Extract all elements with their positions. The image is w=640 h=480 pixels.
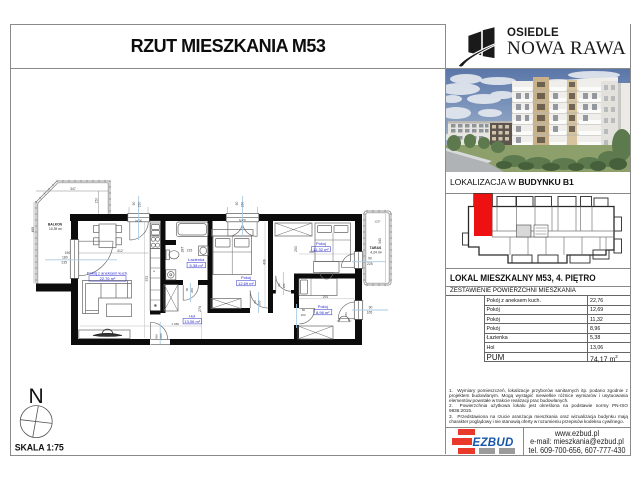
svg-text:200: 200 xyxy=(190,288,194,293)
svg-text:13,06 m²: 13,06 m² xyxy=(184,319,200,324)
svg-text:180: 180 xyxy=(62,256,68,260)
svg-text:215: 215 xyxy=(187,249,193,253)
svg-text:1 960: 1 960 xyxy=(172,322,180,326)
svg-text:998: 998 xyxy=(154,334,158,339)
svg-text:90: 90 xyxy=(235,202,239,206)
svg-text:90: 90 xyxy=(368,256,372,260)
svg-text:150: 150 xyxy=(241,202,245,208)
svg-text:bp.90: bp.90 xyxy=(135,218,142,222)
svg-text:10,39 m²: 10,39 m² xyxy=(49,227,63,231)
svg-text:274: 274 xyxy=(198,306,202,312)
svg-text:123°: 123° xyxy=(374,220,381,224)
svg-text:225: 225 xyxy=(367,262,373,266)
svg-text:5,38 m²: 5,38 m² xyxy=(190,263,204,268)
svg-text:80: 80 xyxy=(277,283,281,287)
svg-text:80: 80 xyxy=(253,300,257,304)
svg-text:12,69 m²: 12,69 m² xyxy=(238,281,254,286)
svg-text:200: 200 xyxy=(258,300,262,305)
svg-text:150: 150 xyxy=(94,198,98,204)
svg-text:Łazienka: Łazienka xyxy=(188,257,205,262)
svg-text:150: 150 xyxy=(65,251,71,255)
svg-text:TARAS: TARAS xyxy=(370,246,382,250)
svg-text:150: 150 xyxy=(138,202,142,208)
svg-text:Pokój: Pokój xyxy=(318,304,328,309)
svg-text:347: 347 xyxy=(70,187,76,191)
svg-text:287: 287 xyxy=(181,247,185,253)
svg-text:235: 235 xyxy=(61,260,67,264)
svg-text:200: 200 xyxy=(282,283,286,288)
svg-text:8,96 m²: 8,96 m² xyxy=(316,310,330,315)
svg-text:412: 412 xyxy=(117,249,123,253)
svg-text:253: 253 xyxy=(344,312,348,317)
svg-text:11,32 m²: 11,32 m² xyxy=(313,247,329,252)
svg-text:Pokój: Pokój xyxy=(241,275,251,280)
svg-text:90: 90 xyxy=(132,202,136,206)
svg-text:495: 495 xyxy=(31,227,35,233)
svg-text:Pokój: Pokój xyxy=(316,241,326,246)
svg-text:90: 90 xyxy=(369,305,373,309)
svg-text:Pokój z aneksem kuch.: Pokój z aneksem kuch. xyxy=(87,271,128,276)
svg-text:2.: 2. xyxy=(152,270,156,273)
svg-text:2060: 2060 xyxy=(159,333,163,340)
svg-text:80: 80 xyxy=(302,308,306,312)
svg-text:200: 200 xyxy=(301,313,306,317)
svg-text:4,24 m²: 4,24 m² xyxy=(370,251,382,255)
svg-text:436: 436 xyxy=(263,259,267,265)
svg-text:22,76 m²: 22,76 m² xyxy=(100,276,116,281)
svg-text:165: 165 xyxy=(367,311,373,315)
svg-text:80: 80 xyxy=(185,288,189,292)
svg-text:572: 572 xyxy=(145,276,149,282)
svg-text:Hol: Hol xyxy=(189,313,195,318)
svg-text:291: 291 xyxy=(323,295,329,299)
svg-text:253: 253 xyxy=(294,246,298,252)
svg-text:343: 343 xyxy=(378,238,382,244)
svg-text:bp150: bp150 xyxy=(239,218,247,222)
